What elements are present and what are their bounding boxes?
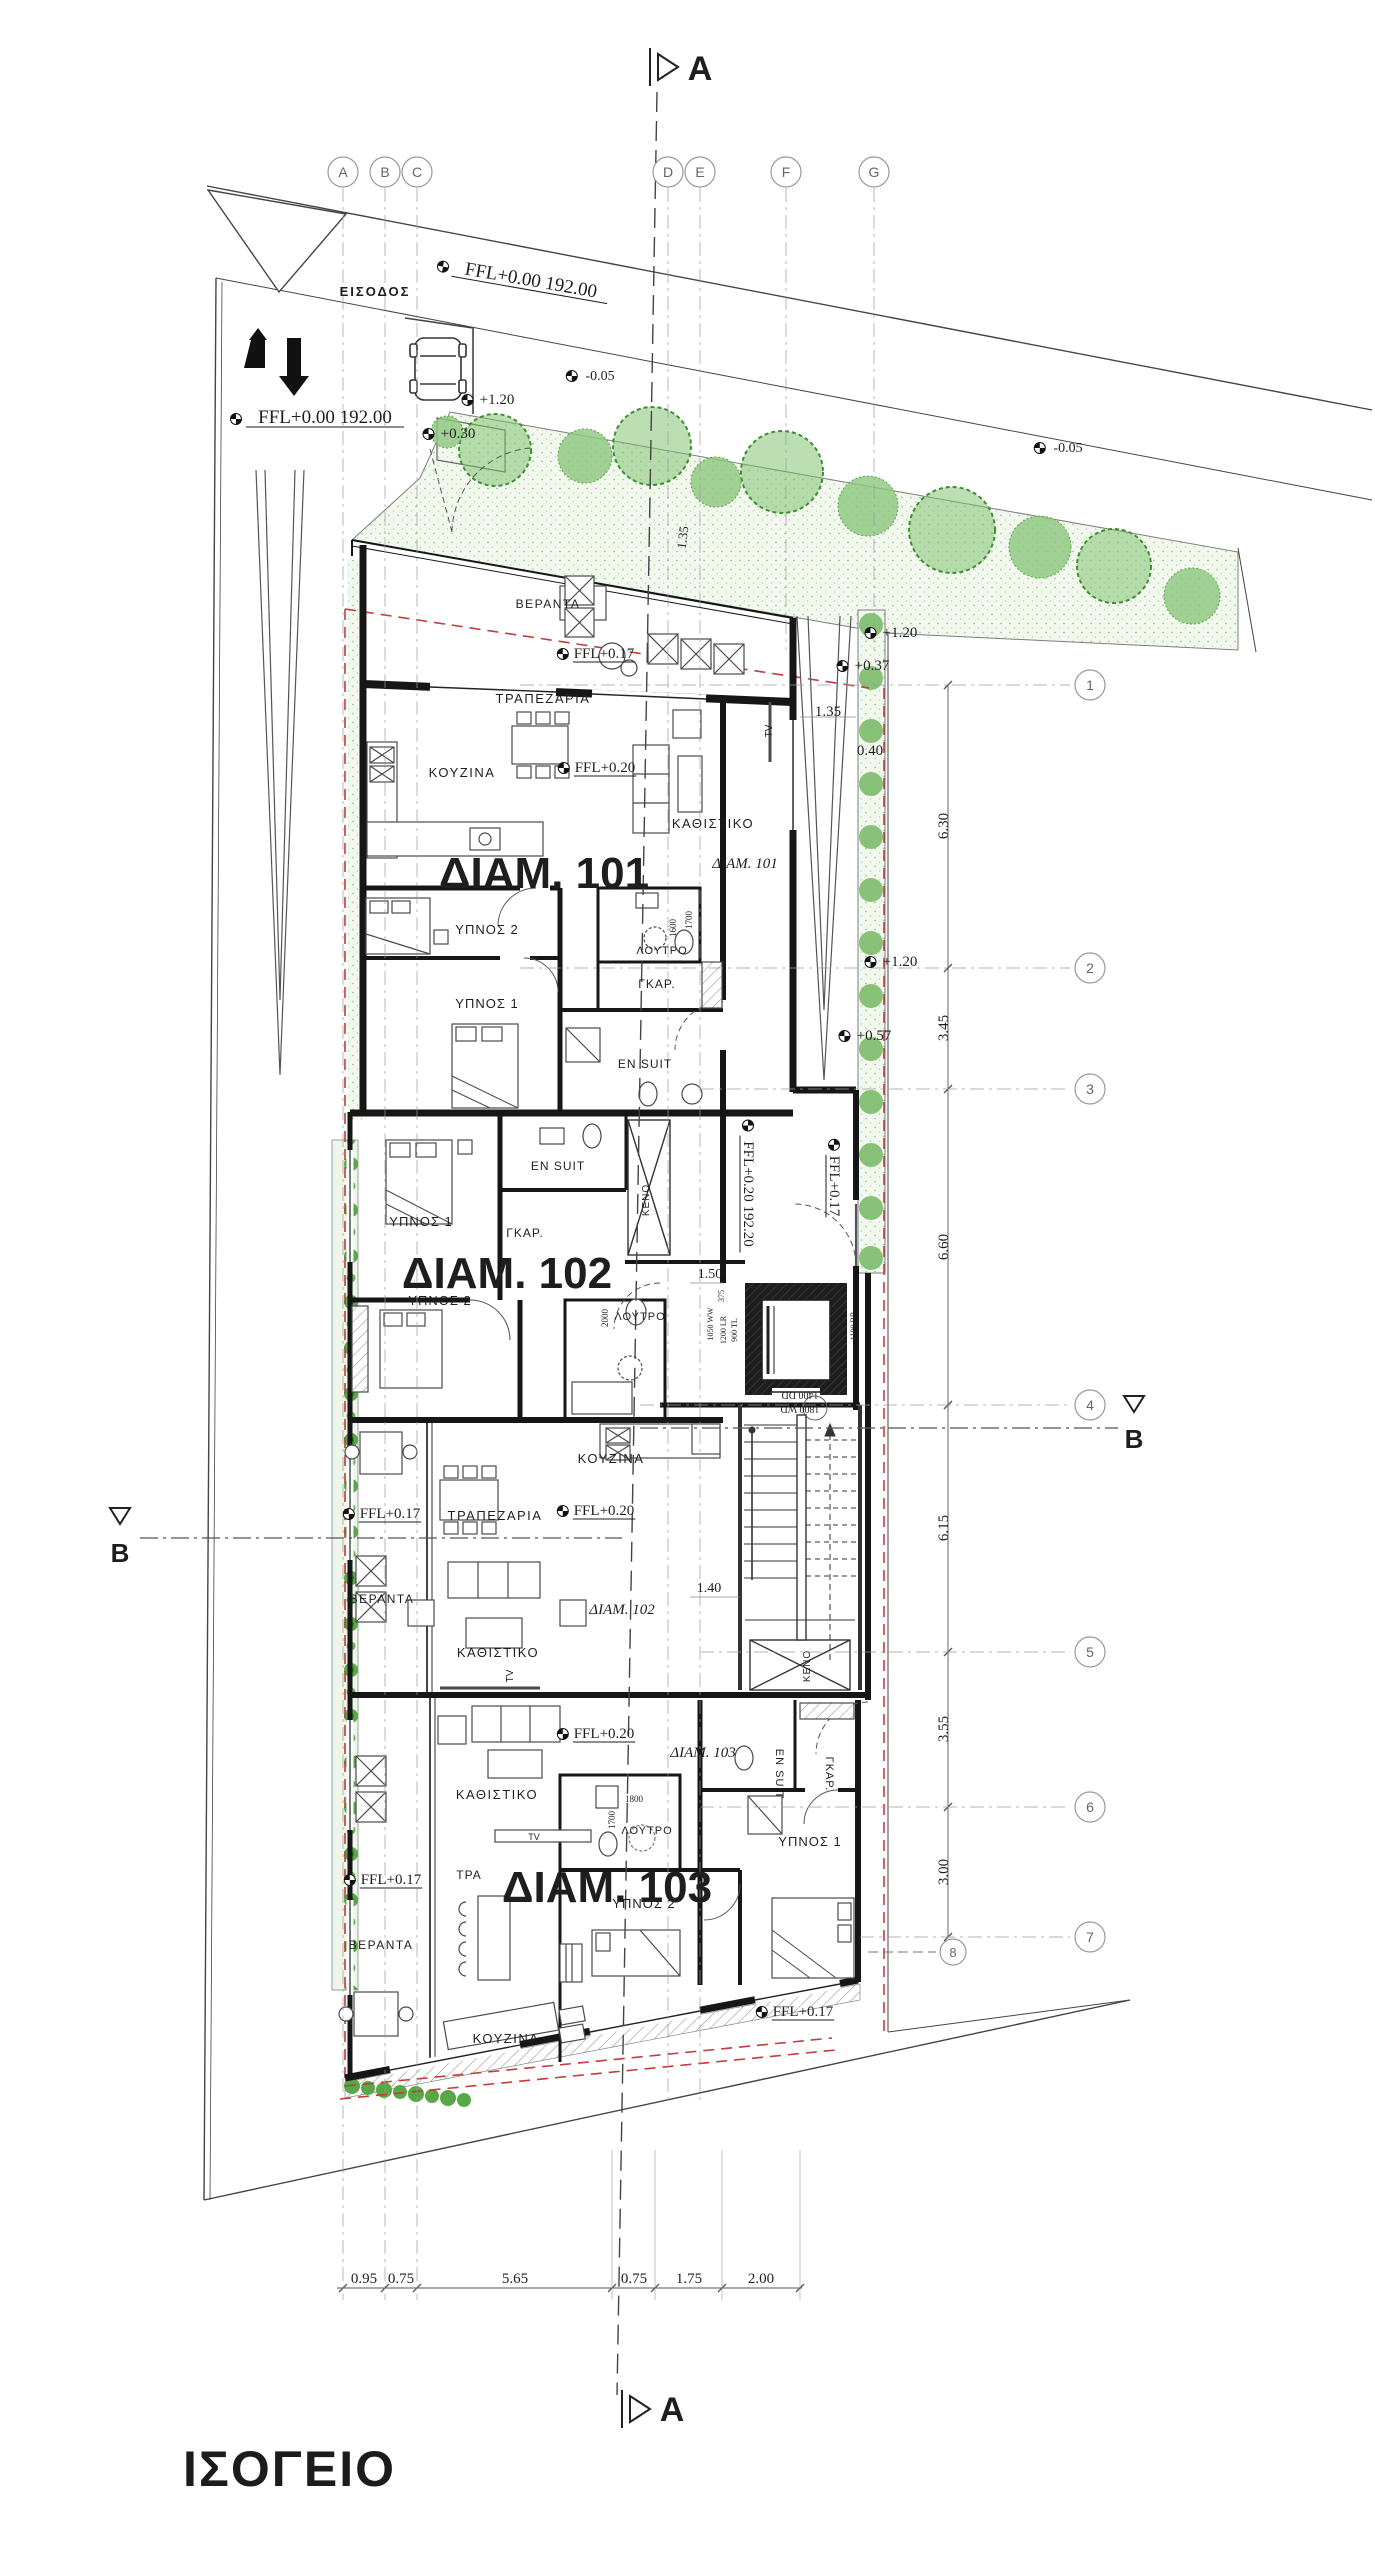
svg-text:D: D <box>663 164 673 180</box>
label-27: ΥΠΝΟΣ 1 <box>455 996 518 1011</box>
label-15: FFL+0.17 <box>574 646 635 662</box>
label-24: 1600 <box>668 919 678 938</box>
label-14: ΒΕΡΑΝΤΑ <box>516 597 581 611</box>
label-12: +1.20 <box>883 954 918 970</box>
label-73: ΚΟΥΖΙΝΑ <box>473 2031 540 2046</box>
label-26: ΓΚΑΡ. <box>638 977 675 991</box>
floor-plan-page: ABCDEFG12345678 ΕΙΣΟΔΟΣFFL+0.00 192.00FF… <box>0 0 1375 2560</box>
label-29: TV <box>764 724 775 737</box>
label-33: 375 <box>717 1290 726 1302</box>
label-apt-102-big: ΔΙΑΜ. 102 <box>402 1249 612 1298</box>
label-4: +0.30 <box>441 426 476 442</box>
label-11: 1.35 <box>674 525 692 549</box>
label-72: FFL+0.17 <box>361 1872 422 1888</box>
label-70: ΥΠΝΟΣ 2 <box>612 1896 675 1911</box>
label-3: +1.20 <box>480 392 515 408</box>
label-6: -0.05 <box>1053 441 1082 456</box>
svg-text:B: B <box>380 164 389 180</box>
label-dim-right-5: 3.55 <box>936 1716 952 1742</box>
label-25: 1700 <box>684 911 694 930</box>
label-51: ΤΡΑΠΕΖΑΡΙΑ <box>448 1508 543 1523</box>
label-40: EN SUIT <box>531 1159 585 1173</box>
label-19: ΚΑΘΙΣΤΙΚΟ <box>672 816 754 831</box>
label-67: TV <box>528 1832 540 1842</box>
label-74: FFL+0.17 <box>773 2004 834 2020</box>
label-62: ΥΠΝΟΣ 1 <box>778 1834 841 1849</box>
svg-text:C: C <box>412 164 422 180</box>
svg-text:E: E <box>695 164 704 180</box>
label-22: ΥΠΝΟΣ 2 <box>455 922 518 937</box>
label-23: ΛΟΥΤΡΟ <box>636 945 687 957</box>
label-32: 1.50 <box>698 1267 723 1282</box>
label-dim-bottom-4: 0.75 <box>621 2271 647 2287</box>
label-dim-bottom-5: 1.75 <box>676 2271 702 2287</box>
label-50: FFL+0.20 <box>574 1503 635 1519</box>
svg-text:G: G <box>869 164 880 180</box>
label-ffl-street: FFL+0.00 192.00 <box>463 259 598 303</box>
label-ffl-drive: FFL+0.00 192.00 <box>258 407 392 428</box>
label-61: ΚΕΝΟ <box>802 1650 813 1682</box>
label-dim-right-3: 6.60 <box>936 1234 952 1260</box>
label-66: TV <box>505 1669 516 1682</box>
label-64: 1800 <box>625 1794 644 1804</box>
svg-text:2: 2 <box>1086 960 1094 976</box>
label-entrance-label: ΕΙΣΟΔΟΣ <box>340 284 411 299</box>
label-28: EN SUIT <box>618 1057 672 1071</box>
label-17: ΚΟΥΖΙΝΑ <box>429 765 496 780</box>
label-18: FFL+0.20 <box>575 760 636 776</box>
label-35: 1200 LR <box>719 1315 728 1344</box>
svg-text:4: 4 <box>1086 1397 1094 1413</box>
plan-labels: ΕΙΣΟΔΟΣFFL+0.00 192.00FFL+0.00 192.00+1.… <box>111 50 1144 2429</box>
svg-text:6: 6 <box>1086 1799 1094 1815</box>
label-section-b-right: B <box>1125 1424 1144 1454</box>
svg-text:A: A <box>338 164 348 180</box>
svg-text:1: 1 <box>1086 677 1094 693</box>
label-47: ΛΟΥΤΡΟ <box>614 1311 665 1323</box>
svg-text:7: 7 <box>1086 1929 1094 1945</box>
label-dim-right-2: 3.45 <box>936 1015 952 1041</box>
label-65: 1700 <box>607 1811 617 1830</box>
label-apt-103-big: ΔΙΑΜ. 103 <box>502 1863 712 1912</box>
label-16: ΤΡΑΠΕΖΑΡΙΑ <box>496 691 591 706</box>
label-section-b-left: B <box>111 1538 130 1568</box>
label-section-a-top: A <box>688 50 713 88</box>
label-59: EN SUIT <box>773 1749 785 1799</box>
label-dim-right-1: 6.30 <box>936 813 952 839</box>
label-31: FFL+0.20 192.20 <box>740 1141 756 1247</box>
label-34: 1050 WW <box>706 1307 715 1340</box>
label-63: ΛΟΥΤΡΟ <box>621 1825 672 1837</box>
page-title: ΙΣΟΓΕΙΟ <box>183 2440 396 2498</box>
label-36: 900 TL <box>730 1318 739 1342</box>
label-apt-102-small: ΔΙΑΜ. 102 <box>588 1602 655 1618</box>
label-apt-101-small: ΔΙΑΜ. 101 <box>711 856 777 872</box>
svg-text:5: 5 <box>1086 1644 1094 1660</box>
label-37: 1100 BB <box>849 1312 858 1340</box>
label-38: 1400 DD <box>782 1389 819 1400</box>
label-section-a-bottom: A <box>660 2391 685 2429</box>
label-71: ΒΕΡΑΝΤΑ <box>349 1938 414 1952</box>
label-dim-bottom-3: 5.65 <box>502 2271 528 2287</box>
parked-car <box>410 338 466 400</box>
label-69: ΤΡΑ <box>456 1868 481 1882</box>
label-56: ΚΑΘΙΣΤΙΚΟ <box>456 1787 538 1802</box>
label-49: FFL+0.17 <box>360 1506 421 1522</box>
label-45: ΚΕΝΟ <box>641 1184 652 1216</box>
label-dim-bottom-2: 0.75 <box>388 2271 414 2287</box>
svg-text:3: 3 <box>1086 1081 1094 1097</box>
label-10: 0.40 <box>857 743 883 759</box>
label-41: ΥΠΝΟΣ 1 <box>389 1214 452 1229</box>
label-53: ΚΑΘΙΣΤΙΚΟ <box>457 1645 539 1660</box>
label-5: -0.05 <box>585 369 614 384</box>
label-8: +0.37 <box>855 658 890 674</box>
label-44: ΥΠΝΟΣ 2 <box>408 1293 471 1308</box>
label-apt-101-big: ΔΙΑΜ. 101 <box>439 849 649 898</box>
label-dim-bottom-6: 2.00 <box>748 2271 774 2287</box>
label-46: 2000 <box>600 1309 610 1328</box>
label-39: 1800 WD <box>781 1403 820 1414</box>
label-55: 1.40 <box>697 1581 722 1596</box>
label-apt-103-small: ΔΙΑΜ. 103 <box>669 1745 735 1761</box>
svg-text:F: F <box>782 164 791 180</box>
floor-plan-svg: ABCDEFG12345678 ΕΙΣΟΔΟΣFFL+0.00 192.00FF… <box>0 0 1375 2560</box>
label-42: ΓΚΑΡ. <box>506 1226 543 1240</box>
label-60: ΓΚΑΡ. <box>823 1757 835 1792</box>
svg-text:8: 8 <box>949 1945 956 1960</box>
label-57: FFL+0.20 <box>574 1726 635 1742</box>
label-30: FFL+0.17 <box>826 1156 842 1217</box>
label-dim-bottom-1: 0.95 <box>351 2271 377 2287</box>
label-dim-right-4: 6.15 <box>936 1515 952 1541</box>
label-48: ΚΟΥΖΙΝΑ <box>578 1451 645 1466</box>
label-9: 1.35 <box>815 704 841 720</box>
direction-arrows-icon <box>244 328 309 396</box>
label-dim-right-6: 3.00 <box>936 1859 952 1885</box>
label-13: +0.57 <box>857 1028 892 1044</box>
label-7: +1.20 <box>883 625 918 641</box>
label-52: ΒΕΡΑΝΤΑ <box>350 1592 415 1606</box>
